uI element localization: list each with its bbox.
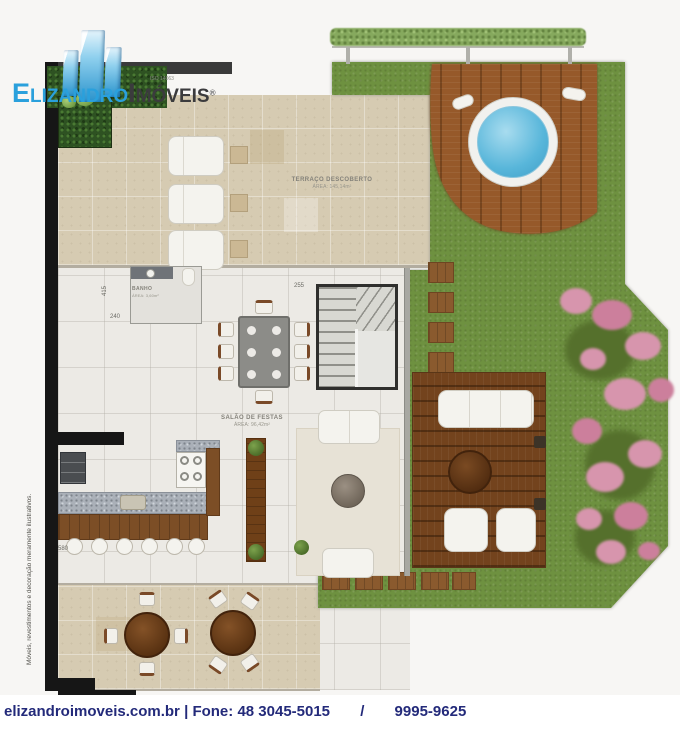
room-label-terraco: TERRAÇO DESCOBERTO ÁREA: 145,14m² bbox=[262, 176, 402, 191]
dining-chair bbox=[218, 322, 234, 337]
footer-contact: elizandroimoveis.com.br | Fone: 48 3045-… bbox=[4, 703, 466, 720]
side-table bbox=[230, 194, 248, 212]
burner bbox=[193, 472, 202, 481]
dimension-255: 255 bbox=[294, 283, 304, 289]
bar-stool bbox=[166, 538, 183, 555]
plant-pot bbox=[248, 440, 264, 456]
dining-chair bbox=[255, 390, 273, 404]
footer-slash: / bbox=[360, 703, 364, 720]
sun-lounger bbox=[168, 230, 224, 270]
brand-primary: Elizandro bbox=[12, 80, 128, 107]
kitchen-cabinet bbox=[60, 452, 86, 484]
footer-site: elizandroimoveis.com.br bbox=[4, 703, 180, 720]
side-table bbox=[534, 436, 546, 448]
cabinet-column bbox=[206, 448, 220, 516]
footer-phone-primary: 48 3045-5015 bbox=[237, 703, 330, 720]
pergola-post bbox=[346, 47, 350, 64]
stepping-stone bbox=[428, 262, 454, 283]
round-dining-table bbox=[124, 612, 170, 658]
plant-pot bbox=[294, 540, 309, 555]
bar-front bbox=[58, 514, 208, 540]
side-table bbox=[230, 240, 248, 258]
plate bbox=[247, 326, 256, 335]
plate bbox=[272, 326, 281, 335]
logo: ISO 14063 ElizandroImóveis® bbox=[0, 20, 250, 115]
flower-bed bbox=[596, 540, 626, 564]
sun-lounger bbox=[168, 184, 224, 224]
flower-bed bbox=[625, 332, 661, 360]
wall-segment-left bbox=[45, 62, 58, 690]
pergola-post bbox=[568, 47, 572, 64]
flower-bed bbox=[580, 348, 606, 370]
sun-lounger bbox=[168, 136, 224, 176]
flower-bed bbox=[638, 542, 660, 560]
outdoor-armchair bbox=[496, 508, 536, 552]
disclaimer-text: Móveis, revestimentos e decoração merame… bbox=[26, 435, 38, 665]
stepping-stone bbox=[428, 322, 454, 343]
outdoor-armchair bbox=[444, 508, 488, 552]
flower-bed bbox=[628, 440, 662, 468]
plate bbox=[272, 348, 281, 357]
terrace-chair bbox=[139, 592, 155, 606]
room-title: BANHO bbox=[132, 286, 174, 293]
burner bbox=[180, 472, 189, 481]
dining-chair bbox=[294, 366, 310, 381]
bathroom-sink bbox=[146, 269, 155, 278]
hedge-pergola bbox=[330, 28, 586, 46]
round-table bbox=[448, 450, 492, 494]
brand-text: ElizandroImóveis® bbox=[12, 80, 216, 107]
bar-stool bbox=[141, 538, 158, 555]
terrace-chair bbox=[139, 662, 155, 676]
wall-segment-kitchen bbox=[45, 432, 124, 445]
bar-stool bbox=[66, 538, 83, 555]
toilet bbox=[182, 268, 195, 286]
dining-chair bbox=[294, 344, 310, 359]
dining-chair bbox=[294, 322, 310, 337]
side-table bbox=[534, 498, 546, 510]
flower-bed bbox=[572, 418, 602, 444]
spa-pool bbox=[477, 106, 549, 178]
flower-bed bbox=[560, 288, 592, 314]
stepping-stone bbox=[452, 572, 476, 590]
plate bbox=[247, 348, 256, 357]
outdoor-sofa bbox=[438, 390, 534, 428]
footer-phone-secondary: 9995-9625 bbox=[395, 703, 467, 720]
plant-pot bbox=[248, 544, 264, 560]
footer-phone-label: Fone: bbox=[192, 703, 233, 720]
dimension-415: 415 bbox=[102, 286, 108, 296]
dimension-580: 580 bbox=[58, 546, 68, 552]
pergola-post bbox=[466, 47, 470, 64]
stair-divider bbox=[355, 329, 358, 387]
round-dining-table bbox=[210, 610, 256, 656]
footer-separator: | bbox=[184, 703, 188, 720]
dining-chair bbox=[255, 300, 273, 314]
burner bbox=[180, 456, 189, 465]
bar-stool bbox=[116, 538, 133, 555]
lounge-chair bbox=[322, 548, 374, 578]
flower-bed bbox=[604, 378, 646, 410]
registered-mark: ® bbox=[210, 89, 216, 98]
dining-chair bbox=[218, 344, 234, 359]
pergola-shelf bbox=[332, 46, 584, 48]
plate bbox=[272, 370, 281, 379]
stair-steps bbox=[319, 287, 356, 387]
room-label-banho: BANHO ÁREA: 3,60m² bbox=[132, 286, 174, 299]
room-area: ÁREA: 145,14m² bbox=[262, 184, 402, 191]
kitchen-sink bbox=[120, 495, 146, 510]
staircase bbox=[316, 284, 398, 390]
plate bbox=[247, 370, 256, 379]
room-area: ÁREA: 96,42m² bbox=[192, 422, 312, 429]
stair-landing bbox=[356, 331, 395, 387]
dining-chair bbox=[218, 366, 234, 381]
coffee-table bbox=[331, 474, 365, 508]
room-label-salao: SALÃO DE FESTAS ÁREA: 96,42m² bbox=[192, 414, 312, 429]
sofa bbox=[318, 410, 380, 444]
terrace-chair bbox=[174, 628, 188, 644]
dimension-240: 240 bbox=[110, 314, 120, 320]
dining-table bbox=[238, 316, 290, 388]
wall-segment-salon-right bbox=[404, 268, 410, 576]
flower-bed bbox=[592, 300, 632, 330]
burner bbox=[193, 456, 202, 465]
side-table bbox=[230, 146, 248, 164]
brand-secondary: Imóveis bbox=[128, 80, 209, 107]
stepping-stone bbox=[428, 292, 454, 313]
bar-stool bbox=[188, 538, 205, 555]
stair-winders bbox=[356, 287, 395, 331]
room-area: ÁREA: 3,60m² bbox=[132, 293, 174, 299]
flower-bed bbox=[586, 462, 624, 492]
stepping-stone bbox=[421, 572, 449, 590]
floor-plan-image: TERRAÇO DESCOBERTO ÁREA: 145,14m² SALÃO … bbox=[0, 0, 680, 731]
terrace-chair bbox=[104, 628, 118, 644]
stepping-stone bbox=[428, 352, 454, 373]
bar-stool bbox=[91, 538, 108, 555]
flower-bed bbox=[614, 502, 648, 530]
flower-bed bbox=[648, 378, 674, 402]
footer: elizandroimoveis.com.br | Fone: 48 3045-… bbox=[0, 695, 680, 731]
flower-bed bbox=[576, 508, 602, 530]
